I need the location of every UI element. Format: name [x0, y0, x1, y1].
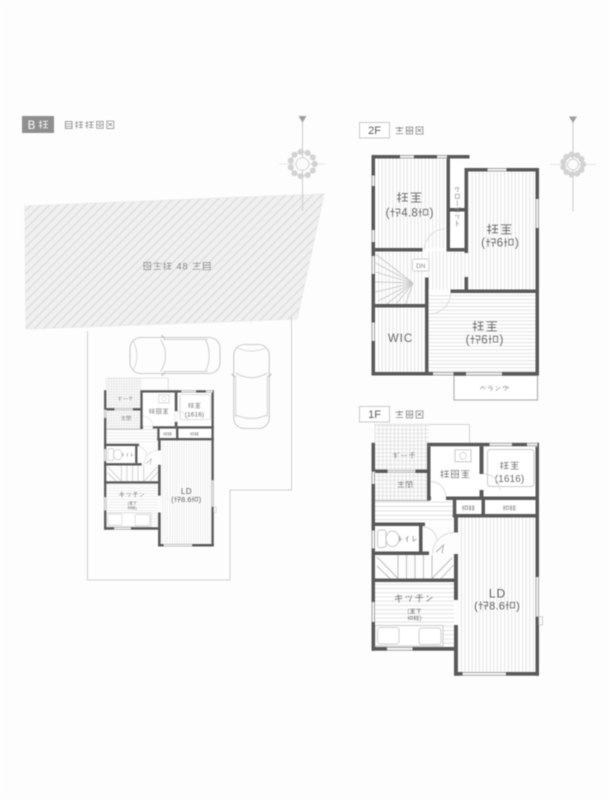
svg-text:): ) — [499, 335, 503, 347]
svg-text:8: 8 — [489, 601, 495, 613]
svg-text:(: ( — [466, 335, 470, 347]
svg-text:WIC: WIC — [388, 333, 413, 345]
svg-text:B: B — [28, 120, 36, 132]
svg-text:6: 6 — [497, 238, 503, 250]
svg-text:(: ( — [481, 238, 485, 250]
svg-text:4: 4 — [176, 261, 181, 272]
svg-text:8: 8 — [411, 208, 417, 220]
svg-text:): ) — [430, 208, 434, 220]
svg-text:): ) — [420, 616, 422, 622]
svg-text:(: ( — [408, 609, 410, 615]
svg-text:): ) — [516, 601, 520, 613]
svg-text:8: 8 — [182, 261, 187, 272]
svg-text:2F: 2F — [368, 125, 381, 137]
svg-text:): ) — [521, 474, 524, 485]
svg-text:(: ( — [386, 208, 390, 220]
svg-text:(: ( — [474, 601, 478, 613]
svg-text:DN: DN — [416, 263, 426, 270]
svg-text:6: 6 — [481, 335, 487, 347]
svg-text:): ) — [515, 238, 519, 250]
svg-text:1: 1 — [510, 474, 515, 485]
svg-text:1: 1 — [498, 474, 503, 485]
svg-text:LD: LD — [489, 587, 506, 601]
svg-text:1F: 1F — [368, 409, 381, 421]
svg-text:6: 6 — [499, 601, 505, 613]
